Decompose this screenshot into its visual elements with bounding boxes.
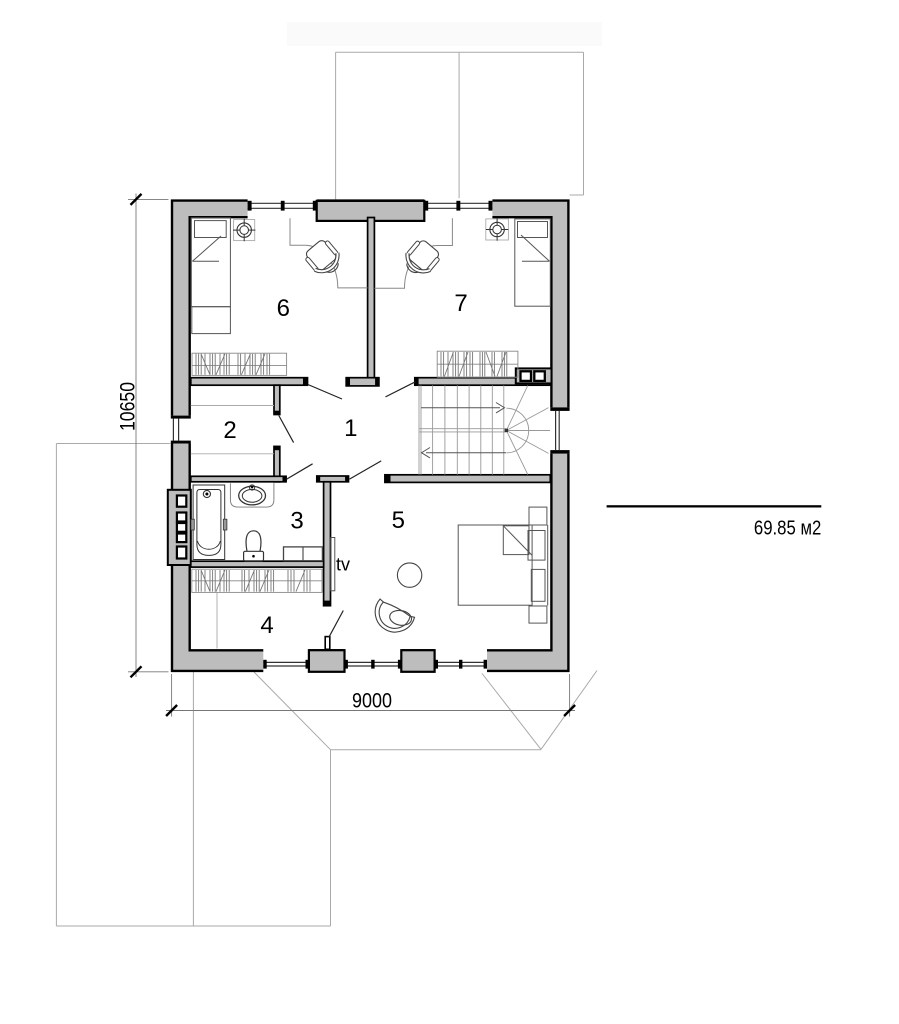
svg-text:9000: 9000: [352, 690, 392, 713]
svg-text:69.85 м2: 69.85 м2: [754, 518, 821, 540]
svg-text:10650: 10650: [117, 382, 140, 431]
svg-text:7: 7: [454, 290, 467, 317]
svg-text:4: 4: [260, 612, 273, 639]
svg-text:6: 6: [277, 295, 290, 322]
svg-text:5: 5: [392, 507, 405, 534]
svg-text:2: 2: [223, 417, 236, 444]
svg-text:tv: tv: [336, 555, 350, 575]
svg-text:1: 1: [344, 415, 357, 442]
svg-text:3: 3: [290, 507, 303, 534]
